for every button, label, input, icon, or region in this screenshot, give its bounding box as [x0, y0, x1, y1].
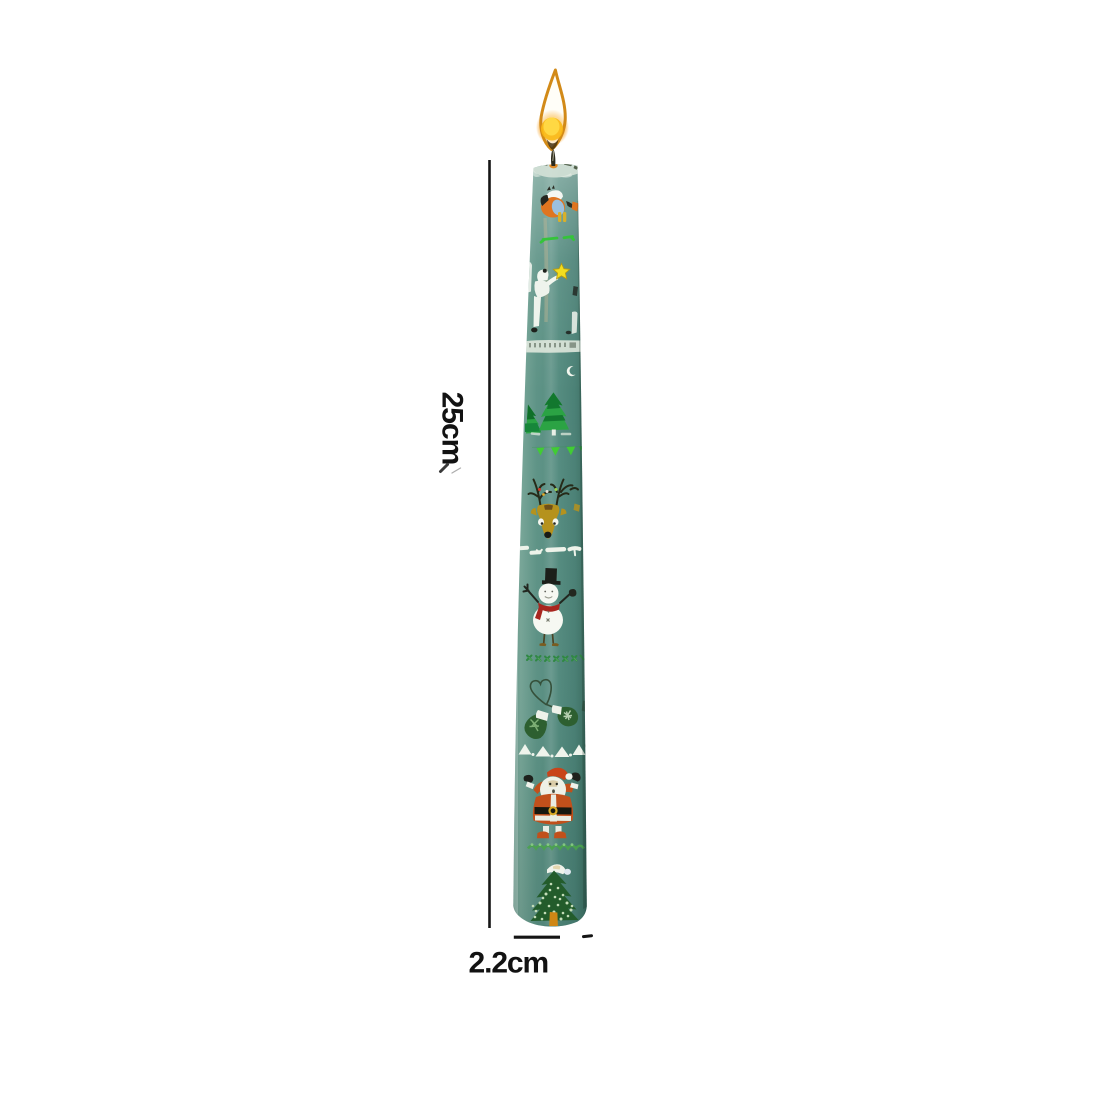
svg-text:2.2cm: 2.2cm	[469, 947, 549, 980]
svg-text:25cm: 25cm	[436, 392, 469, 465]
